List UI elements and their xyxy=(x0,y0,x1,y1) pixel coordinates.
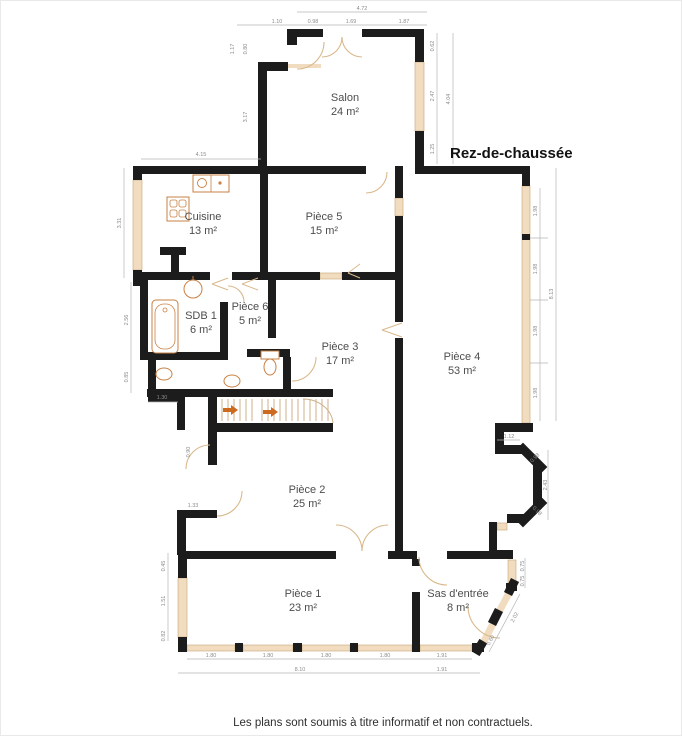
wall xyxy=(260,166,268,275)
window xyxy=(420,645,472,651)
dimension-label: 0.75 xyxy=(520,576,526,587)
room-area: 17 m² xyxy=(326,355,354,367)
wall xyxy=(494,614,497,620)
toilet-tank xyxy=(261,351,279,359)
wall xyxy=(415,166,527,174)
wall xyxy=(283,357,291,391)
dimension-label: 0.62 xyxy=(430,41,436,52)
room-area: 23 m² xyxy=(289,602,317,614)
wall xyxy=(489,522,497,555)
door-arc xyxy=(362,525,388,551)
dimension-label: 0.98 xyxy=(308,19,319,25)
door-leaf xyxy=(348,264,360,273)
dimension-label: 1.25 xyxy=(430,144,436,155)
wall xyxy=(177,518,186,555)
wall xyxy=(220,302,228,358)
stair-direction-arrow xyxy=(223,405,238,415)
room-area: 13 m² xyxy=(189,225,217,237)
wall xyxy=(140,280,148,360)
dimension-label: 1.91 xyxy=(437,667,448,673)
wall xyxy=(177,510,217,518)
window xyxy=(243,645,293,651)
dimension-label: 1.98 xyxy=(533,388,539,399)
window xyxy=(133,180,142,270)
wall xyxy=(177,394,185,430)
wall xyxy=(522,234,530,240)
dimension-label: 3.31 xyxy=(117,218,123,229)
wall xyxy=(232,272,320,280)
wash-basin xyxy=(224,375,240,387)
room-name: Sas d'entrée xyxy=(427,588,488,600)
wall xyxy=(147,389,333,397)
wall xyxy=(160,247,186,255)
dimension-label: 0.75 xyxy=(520,561,526,572)
room-name: Salon xyxy=(331,92,359,104)
wall xyxy=(495,423,533,432)
pedestal-sink xyxy=(184,280,202,298)
wall xyxy=(415,29,424,62)
room-area: 8 m² xyxy=(447,602,469,614)
dimension-label: 0.85 xyxy=(124,372,130,383)
wall xyxy=(178,559,187,578)
dimension-label: 8.13 xyxy=(549,289,555,300)
wall xyxy=(522,166,530,186)
door-arc xyxy=(292,357,316,381)
room-name: Pièce 3 xyxy=(322,341,359,353)
door-arc xyxy=(217,491,242,516)
door-arc xyxy=(336,525,362,551)
wall xyxy=(178,551,336,559)
toilet-bowl xyxy=(264,359,276,375)
room-name: Pièce 1 xyxy=(285,588,322,600)
window xyxy=(320,273,342,279)
wall xyxy=(497,550,513,558)
door-arc xyxy=(228,286,244,302)
room-name: Cuisine xyxy=(185,211,222,223)
wall xyxy=(362,29,416,37)
window xyxy=(497,523,507,530)
room-area: 25 m² xyxy=(293,498,321,510)
dimension-label: 1.98 xyxy=(533,264,539,275)
dimension-label: 2.43 xyxy=(543,480,549,491)
wall xyxy=(342,272,396,280)
dimension-label: 1.98 xyxy=(533,206,539,217)
wall xyxy=(293,643,302,652)
dimension-label: 2.47 xyxy=(430,91,436,102)
wall xyxy=(510,584,513,590)
disclaimer-text: Les plans sont soumis à titre informatif… xyxy=(0,717,682,729)
room-name: Pièce 6 xyxy=(232,301,269,313)
wall xyxy=(395,338,403,555)
room-name: Pièce 2 xyxy=(289,484,326,496)
dimension-label: 1.17 xyxy=(230,44,236,55)
floor-plan-canvas: 4.721.100.981.691.871.170.803.174.153.31… xyxy=(0,0,682,736)
wall xyxy=(235,643,243,652)
door-leaf xyxy=(212,284,228,290)
door-arc xyxy=(419,557,447,585)
wall xyxy=(478,645,481,650)
dimension-label: 1.80 xyxy=(380,653,391,659)
door-arc xyxy=(342,37,362,57)
dimension-label: 1.51 xyxy=(161,596,167,607)
window xyxy=(358,645,412,651)
dimension-label: 4.72 xyxy=(357,6,368,12)
dimension-label: 1.80 xyxy=(206,653,217,659)
room-area: 15 m² xyxy=(310,225,338,237)
dimension-label: 1.69 xyxy=(346,19,357,25)
dimension-label: 1.80 xyxy=(263,653,274,659)
window xyxy=(187,645,235,651)
floor-title: Rez-de-chaussée xyxy=(450,145,573,162)
room-area: 53 m² xyxy=(448,365,476,377)
dimension-label: 4.04 xyxy=(446,94,452,105)
window xyxy=(415,62,424,131)
door-arc xyxy=(322,37,342,57)
stairs xyxy=(222,399,333,423)
room-area: 5 m² xyxy=(239,315,261,327)
door-leaf xyxy=(242,284,258,290)
room-area: 24 m² xyxy=(331,106,359,118)
wall xyxy=(208,397,217,465)
dimension-label: 0.82 xyxy=(161,631,167,642)
wall xyxy=(395,216,403,322)
room-name: Pièce 5 xyxy=(306,211,343,223)
room-name: Pièce 4 xyxy=(444,351,481,363)
window xyxy=(178,578,187,637)
wall xyxy=(268,280,276,338)
window xyxy=(395,198,403,216)
wall xyxy=(178,643,187,652)
dimension-label: 1.87 xyxy=(399,19,410,25)
door-leaf xyxy=(382,330,402,337)
kitchen-hob xyxy=(218,181,221,184)
window xyxy=(302,645,350,651)
dimension-label: 1.98 xyxy=(533,326,539,337)
stair-direction-arrow xyxy=(263,407,278,417)
wall xyxy=(133,166,142,180)
wall xyxy=(412,643,420,652)
floor-plan: 4.721.100.981.691.871.170.803.174.153.31… xyxy=(0,0,682,736)
wall xyxy=(171,255,179,275)
dimension-label: 3.17 xyxy=(243,112,249,123)
dimension-label: 0.80 xyxy=(243,44,249,55)
wall xyxy=(217,423,333,432)
wash-basin xyxy=(156,368,172,380)
dimension-label: 0.45 xyxy=(161,561,167,572)
wall xyxy=(395,166,403,198)
dimension-label: 1.10 xyxy=(272,19,283,25)
dimension-label: 1.30 xyxy=(157,395,168,401)
wall xyxy=(287,29,297,45)
door-leaf xyxy=(382,323,402,330)
wall xyxy=(350,643,358,652)
door-leaf xyxy=(212,278,228,284)
wall xyxy=(412,592,420,643)
dimension-label: 1.80 xyxy=(321,653,332,659)
window xyxy=(522,186,530,423)
wall xyxy=(388,551,417,559)
dimension-label: 0.90 xyxy=(186,447,192,458)
dimension-label: 2.02 xyxy=(510,611,520,623)
dimension-label: 4.15 xyxy=(196,152,207,158)
dimension-label: 2.56 xyxy=(124,315,130,326)
door-arc xyxy=(366,172,387,193)
room-name: SDB 1 xyxy=(185,310,217,322)
dimension-label: 1.12 xyxy=(504,434,515,440)
room-area: 6 m² xyxy=(190,324,212,336)
dimension-label: 1.91 xyxy=(437,653,448,659)
dimension-label: 1.33 xyxy=(188,503,199,509)
wall xyxy=(258,62,267,173)
wall xyxy=(140,166,366,174)
dimension-label: 8.10 xyxy=(295,667,306,673)
